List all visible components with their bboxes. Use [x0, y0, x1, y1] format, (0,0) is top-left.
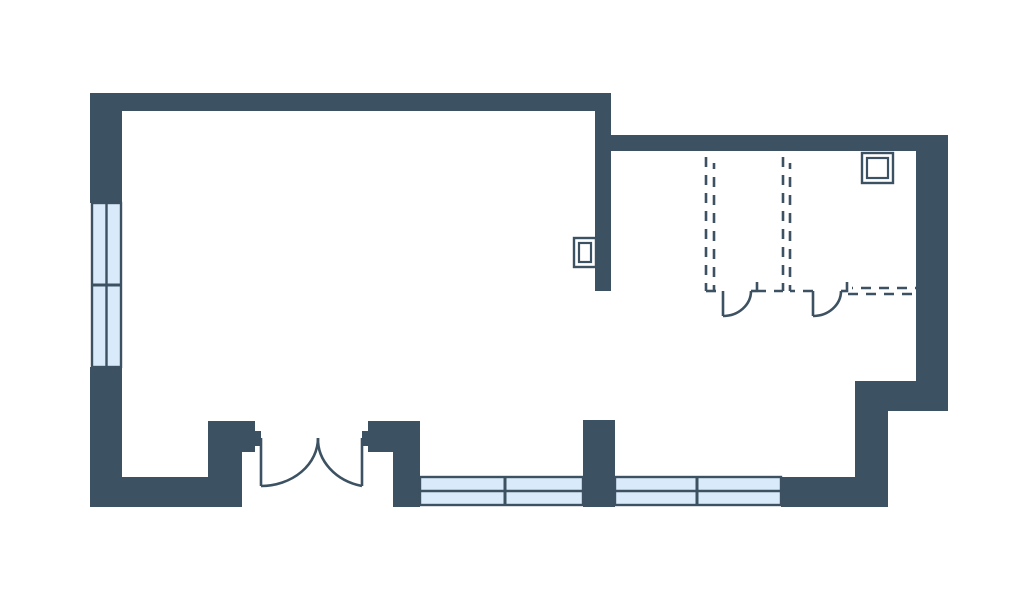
- door-jamb-right-leg: [393, 449, 420, 507]
- wall-box-symbol-left-inner: [579, 243, 591, 262]
- floor-plan: [0, 0, 1024, 603]
- interior-door-2-swing-arc: [813, 291, 841, 316]
- wall-top-right-section: [610, 135, 948, 151]
- door-jamb-left: [208, 421, 255, 452]
- entrance-double-door-left-leaf-swing-arc: [261, 438, 318, 486]
- wall-right: [916, 135, 948, 411]
- wall-box-symbol-top-right-inner: [867, 158, 888, 178]
- interior-door-1-swing-arc: [723, 291, 751, 316]
- door-jamb-right: [368, 421, 420, 452]
- door-jamb-left-leg: [208, 449, 242, 507]
- wall-bottom-right: [781, 477, 888, 507]
- floor-plan-canvas: [0, 0, 1024, 603]
- wall-bottom-pier: [583, 420, 615, 507]
- entrance-double-door-right-leaf-swing-arc: [318, 438, 362, 486]
- wall-divider-vertical: [595, 93, 611, 291]
- wall-top: [90, 93, 610, 111]
